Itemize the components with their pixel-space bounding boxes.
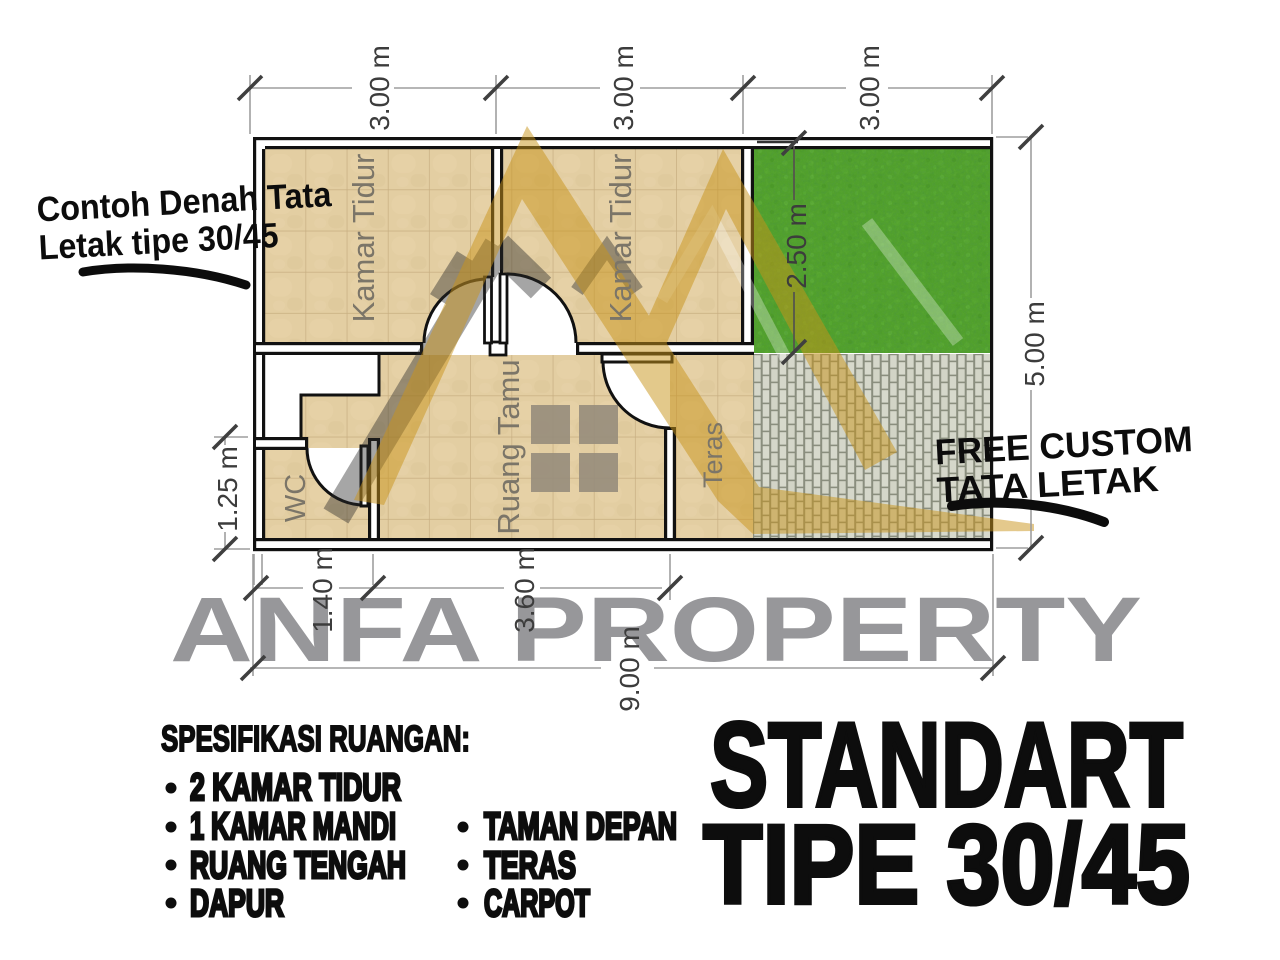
svg-text:2.50 m: 2.50 m xyxy=(781,203,812,289)
svg-text:1.40 m: 1.40 m xyxy=(307,547,338,633)
svg-text:Kamar Tidur: Kamar Tidur xyxy=(603,154,638,323)
svg-text:CARPOT: CARPOT xyxy=(484,883,590,925)
svg-text:1 KAMAR MANDI: 1 KAMAR MANDI xyxy=(190,806,396,848)
svg-text:SPESIFIKASI RUANGAN:: SPESIFIKASI RUANGAN: xyxy=(161,718,470,759)
svg-text:TERAS: TERAS xyxy=(484,845,576,887)
svg-text:3.00 m: 3.00 m xyxy=(364,45,395,131)
svg-text:TIPE 30/45: TIPE 30/45 xyxy=(703,802,1190,927)
svg-text:5.00 m: 5.00 m xyxy=(1019,301,1050,387)
svg-text:Kamar Tidur: Kamar Tidur xyxy=(346,154,381,323)
svg-text:3.00 m: 3.00 m xyxy=(854,45,885,131)
svg-text:1.25 m: 1.25 m xyxy=(212,446,243,532)
svg-text:RUANG TENGAH: RUANG TENGAH xyxy=(190,845,406,887)
svg-text:DAPUR: DAPUR xyxy=(190,883,284,925)
svg-text:Teras: Teras xyxy=(698,422,728,488)
svg-text:2 KAMAR TIDUR: 2 KAMAR TIDUR xyxy=(190,767,401,809)
svg-text:3.00 m: 3.00 m xyxy=(608,45,639,131)
svg-text:Ruang Tamu: Ruang Tamu xyxy=(491,359,526,534)
svg-text:3.60 m: 3.60 m xyxy=(509,547,540,633)
svg-text:9.00 m: 9.00 m xyxy=(614,626,645,712)
svg-text:TAMAN DEPAN: TAMAN DEPAN xyxy=(484,806,677,848)
svg-text:WC: WC xyxy=(280,474,312,522)
